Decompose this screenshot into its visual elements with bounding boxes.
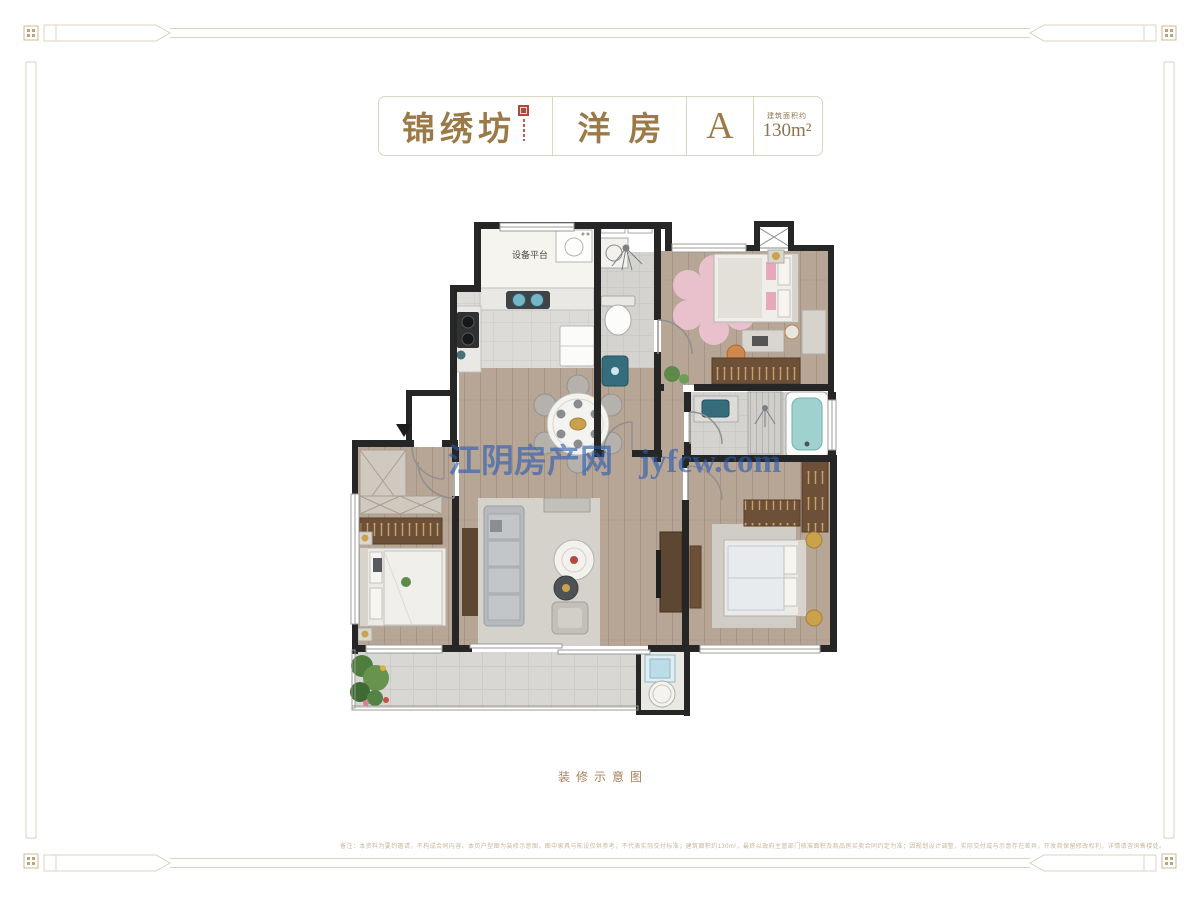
floorplan-page: { "header": { "project_name": "锦绣坊", "pr…	[0, 0, 1200, 899]
area-section: 建筑面积约 130m²	[753, 97, 820, 155]
border-ribbon	[44, 855, 170, 871]
bedroom1-bed	[360, 548, 446, 626]
fridge-icon	[560, 326, 594, 366]
area-value: 130m²	[763, 121, 812, 142]
platform-washer-icon	[556, 230, 592, 262]
window	[672, 244, 746, 252]
watermark-site-url: jyfcw.com	[639, 444, 781, 480]
border-band	[26, 62, 36, 838]
unit-section: A	[686, 97, 753, 155]
window	[351, 494, 359, 624]
bedroom2-nightstand	[768, 250, 784, 263]
coffee-table	[554, 540, 594, 580]
sofa	[484, 506, 524, 626]
armchair	[552, 602, 588, 634]
product-type-section: 洋房	[552, 97, 686, 155]
title-bar: 锦绣坊 洋房 A 建筑面积约 130m²	[378, 96, 823, 156]
plan-caption: 装修示意图	[353, 768, 853, 785]
bench	[544, 498, 590, 512]
sofa-console	[462, 528, 478, 616]
bathtub-icon	[786, 392, 828, 458]
watermark-site-name: 江阴房产网	[448, 444, 613, 480]
window	[828, 400, 836, 450]
product-type: 洋房	[560, 102, 680, 150]
master-wardrobe-top	[744, 500, 800, 526]
side-table	[554, 576, 578, 600]
master-wardrobe-right	[802, 458, 828, 532]
window	[500, 223, 574, 231]
red-seal-icon	[518, 105, 529, 141]
equipment-platform-label: 设备平台	[512, 249, 548, 260]
bathroom1-sink-icon	[602, 356, 628, 386]
kitchen-sink-icon	[506, 291, 550, 309]
disclaimer-text: 备注：本资料为要约邀请，不构成合同内容。本页户型图为装修示意图，图中家具与陈设仅…	[340, 841, 1162, 851]
project-name-section: 锦绣坊	[379, 97, 552, 155]
window	[366, 645, 442, 653]
border-ribbon	[1030, 25, 1156, 41]
bathroom2-vanity-icon	[694, 396, 738, 422]
project-name: 锦绣坊	[402, 102, 516, 150]
balcony-floor	[355, 652, 637, 708]
bedroom2-bed	[714, 254, 798, 322]
window	[700, 645, 820, 653]
master-bed	[724, 540, 806, 616]
border-ribbon	[44, 25, 170, 41]
master-cabinet	[690, 546, 701, 608]
border-ribbon	[1030, 855, 1156, 871]
unit-label: A	[706, 104, 733, 148]
border-band	[1164, 62, 1174, 838]
tv-unit	[656, 532, 682, 612]
bedroom2-wardrobe	[712, 358, 800, 384]
watermark: 江阴房产网jyfcw.com	[448, 434, 781, 482]
